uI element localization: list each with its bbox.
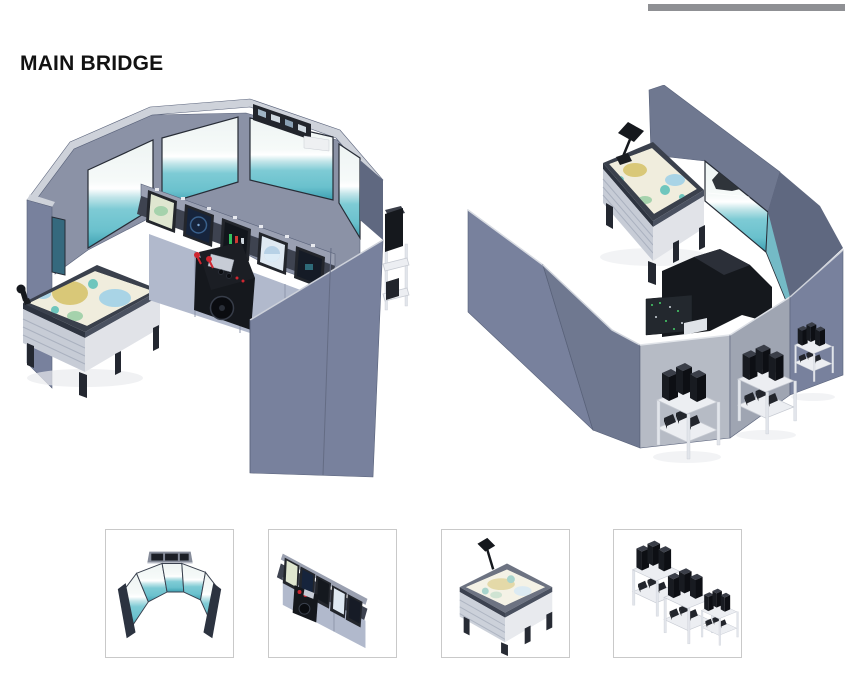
thumbnail-console: [268, 529, 397, 658]
bridge-rear-render: [450, 85, 845, 540]
page-title: MAIN BRIDGE: [20, 52, 163, 76]
screen-arch: [122, 563, 219, 625]
chart-lamp: [477, 538, 495, 570]
console-thumb-graphic: [269, 530, 396, 657]
thumbnail-chart-table: [441, 529, 570, 658]
overhead-console-panel: [147, 552, 192, 564]
header-rule: [648, 4, 845, 11]
racks-thumb-graphic: [614, 530, 741, 657]
equipment-rack: [701, 589, 738, 646]
bridge-front-render: [15, 88, 445, 490]
equipment-rack-mini: [383, 206, 409, 310]
sea-screen-left-sliver: [52, 217, 65, 275]
display-wall-thumb-graphic: [106, 530, 233, 657]
chart-table-thumb-graphic: [442, 530, 569, 657]
slide-page: MAIN BRIDGE: [0, 0, 845, 684]
thumbnail-equipment-racks: [613, 529, 742, 658]
thumbnail-display-wall: [105, 529, 234, 658]
right-edge-panel: [360, 160, 383, 240]
